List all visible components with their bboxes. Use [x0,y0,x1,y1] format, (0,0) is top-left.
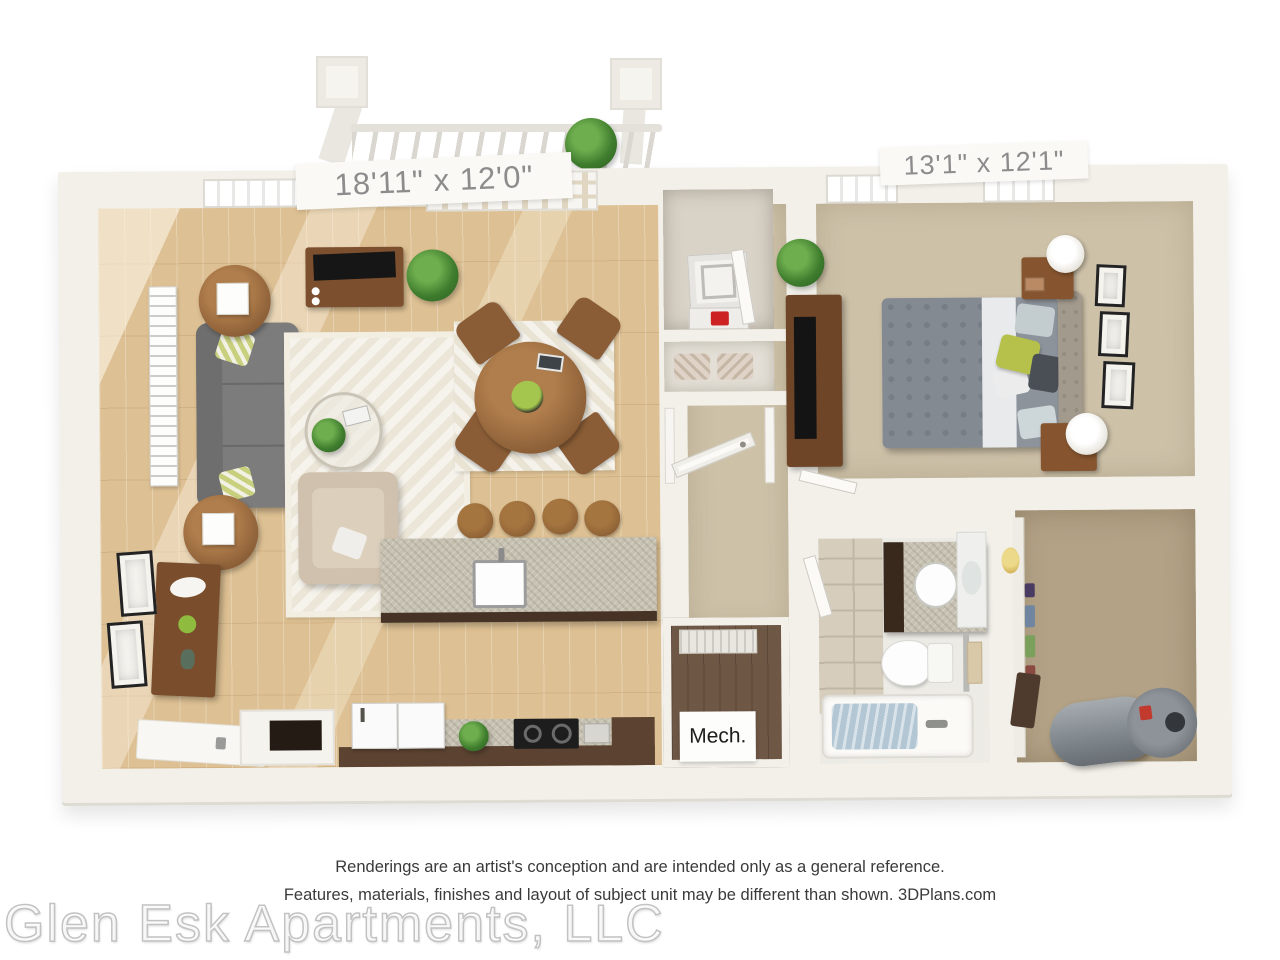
water-heater-port [1164,711,1186,733]
floorplan: Mech. [58,164,1232,806]
bed [882,297,1059,448]
hvac-unit [679,629,757,654]
bar-stool [457,503,493,539]
bar-stool [499,501,535,537]
console-knob [312,287,320,295]
bedside-lamp-south [1066,413,1108,455]
island-sink [473,560,527,608]
counter-plant [459,721,489,751]
door-knob [739,441,747,449]
wall-frame-east-3 [1101,361,1135,409]
living-window [203,178,303,208]
towel [967,642,982,684]
fridge-handle [361,708,365,722]
table-book [536,353,564,372]
refrigerator [352,702,445,749]
mech-label: Mech. [689,724,746,748]
bathtub [821,694,973,759]
dryer-door [701,264,737,300]
stove-burner [524,725,542,743]
counter-appliance [584,723,610,743]
stove-cooktop [514,718,579,748]
bedroom-plant [776,239,824,287]
console-knob [312,297,320,305]
duvet-pattern [882,298,983,449]
balcony-plant [565,118,617,170]
bedside-lamp-north [1046,235,1084,273]
stove-burner [552,724,572,744]
fridge-door-split [397,704,399,750]
bed-pillow [1014,303,1056,338]
living-dimension-label: 18'11" x 12'0" [334,159,534,204]
sideboard [151,562,221,698]
coffee-table-plant [312,418,346,452]
bathroom-tile-wall [818,538,883,713]
hanging-item [1025,635,1035,657]
wall-segment [664,391,787,406]
decor-dish [169,575,207,599]
bedroom-tv [794,317,817,439]
balcony-rail-bar [350,124,662,132]
tv-flatscreen [313,251,396,280]
vanity-mirror [956,532,987,628]
vanity-sink [914,562,958,608]
entry-door-frame-right [764,407,775,483]
closet-door-mirror [1001,547,1019,573]
detergent-bottle [711,311,729,325]
disclaimer-line-2: Features, materials, finishes and layout… [0,886,1280,905]
pantry-closet [240,709,335,766]
fruit-bowl [511,381,543,413]
bath-water [832,703,918,750]
wall-frame-sw-2 [107,620,148,689]
vanity-cabinet [883,542,904,632]
pantry-interior [270,720,322,750]
wall-frame-east-1 [1095,264,1127,307]
kitchen-island [380,537,657,623]
decor-apples [178,615,197,634]
wall-segment [664,329,787,342]
floorplan-rendering: Mech. 18'11" x 12'0" 13'1" x 12'1" Glen … [0,0,1280,960]
sofa-cushion-line [222,382,292,384]
balcony-post-right [610,58,662,110]
bar-stool [542,498,578,534]
table-lamp-north [217,283,249,315]
decor-bottle [180,649,195,670]
mirror-reflection [962,561,982,595]
living-plant [406,249,458,301]
toilet-bowl [881,640,931,686]
wall-art-panels [149,286,178,486]
mech-label-card: Mech. [680,711,756,762]
desk-accessory [215,737,226,750]
island-faucet [498,548,504,562]
hanging-item [1025,583,1035,597]
storage-basket [674,354,710,380]
magazine [1025,277,1045,291]
toilet-tank [927,643,953,683]
kitchen-counter-return [612,717,655,765]
hanging-item [1025,605,1035,627]
bedroom-dimension-label: 13'1" x 12'1" [903,145,1065,182]
disclaimer-line-1: Renderings are an artist's conception an… [0,858,1280,877]
bedroom-dimension-plate: 13'1" x 12'1" [879,140,1088,185]
bar-stool [584,500,620,536]
tv-console [305,247,403,308]
balcony-post-left [316,56,368,108]
table-lamp-south [202,513,234,545]
water-heater-valve [1139,705,1153,720]
sofa-cushion-line [223,444,293,446]
tub-faucet [926,720,948,728]
wall-frame-east-2 [1098,311,1130,357]
storage-basket [717,353,753,379]
wall-frame-sw-1 [116,550,157,617]
bedroom-dresser [786,295,843,467]
mech-room: Mech. [663,617,790,768]
